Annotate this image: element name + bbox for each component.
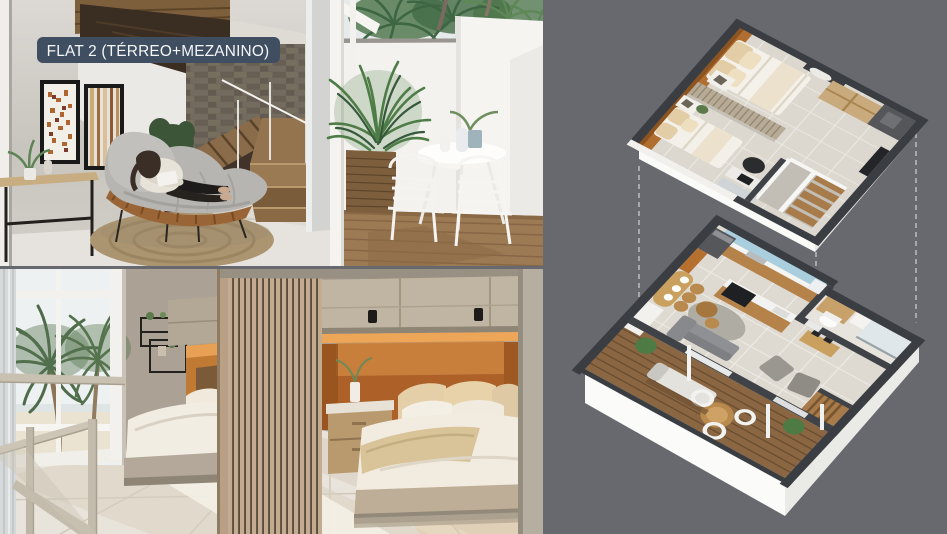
svg-text:FLAT 2 (TÉRREO+MEZANINO): FLAT 2 (TÉRREO+MEZANINO) [47,43,270,60]
